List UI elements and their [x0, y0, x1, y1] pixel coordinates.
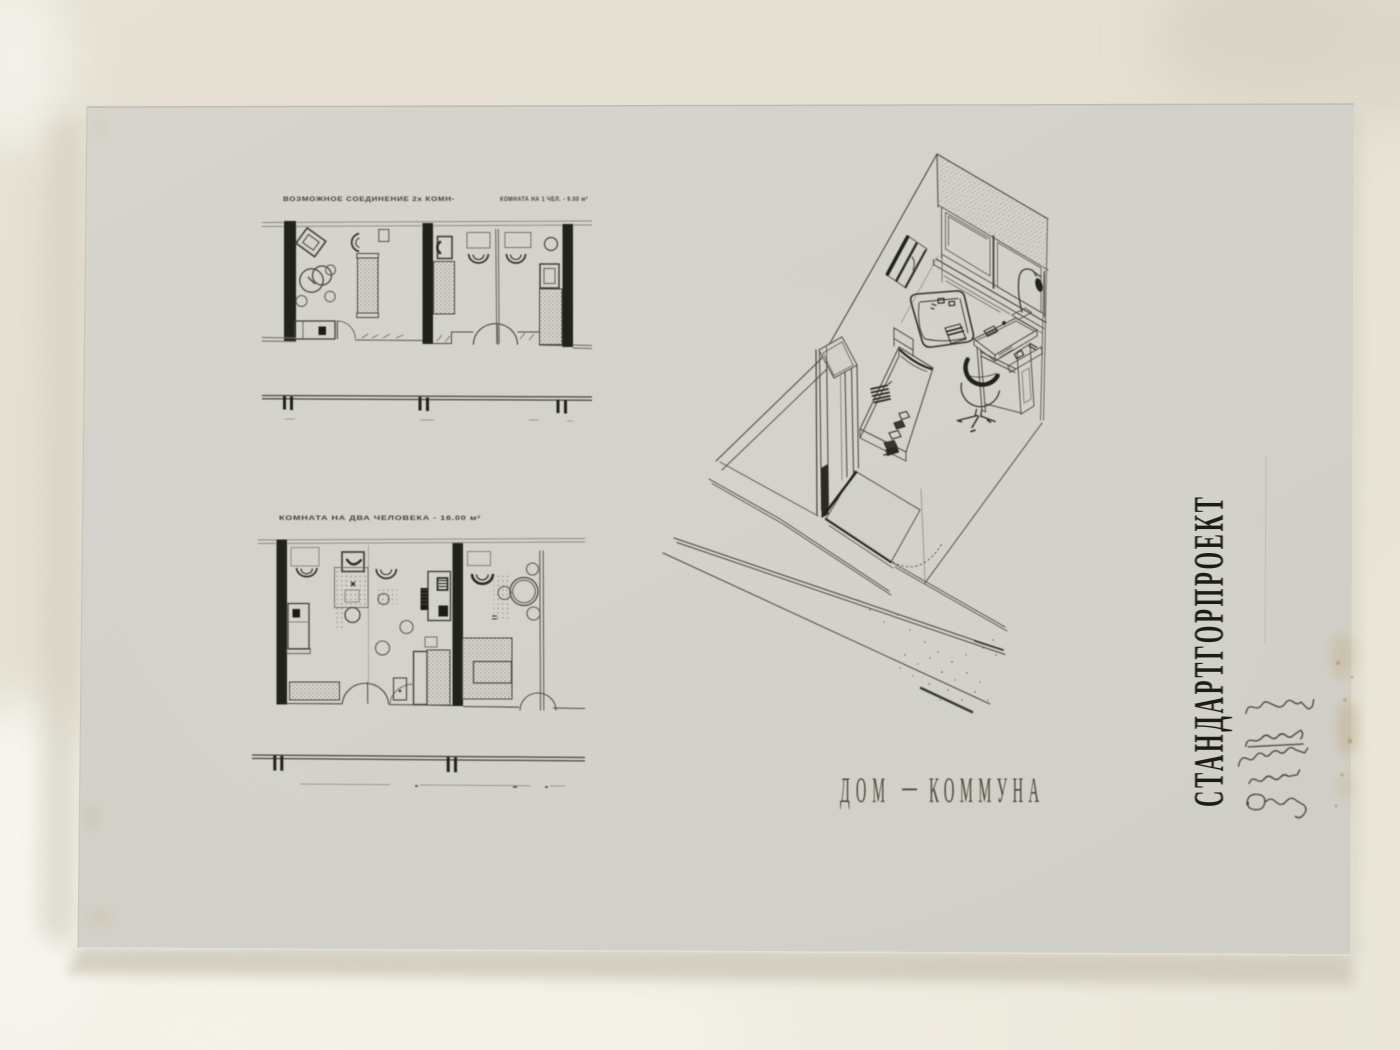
svg-text:КОММУНА: КОММУНА — [929, 769, 1044, 810]
svg-text:СТАНДАРТГОРПРОЕКТ: СТАНДАРТГОРПРОЕКТ — [1187, 494, 1233, 807]
svg-text:ДОМ: ДОМ — [840, 770, 891, 809]
svg-text:КОМНАТА НА ДВА ЧЕЛОВЕКА - 16.0: КОМНАТА НА ДВА ЧЕЛОВЕКА - 16.00 м² — [279, 515, 481, 522]
svg-text:КОМНАТА НА 1 ЧЕЛ. - 9.00 м²: КОМНАТА НА 1 ЧЕЛ. - 9.00 м² — [500, 196, 588, 203]
svg-text:ВОЗМОЖНОЕ СОЕДИНЕНИЕ 2х КОМН-: ВОЗМОЖНОЕ СОЕДИНЕНИЕ 2х КОМН- — [283, 197, 455, 203]
